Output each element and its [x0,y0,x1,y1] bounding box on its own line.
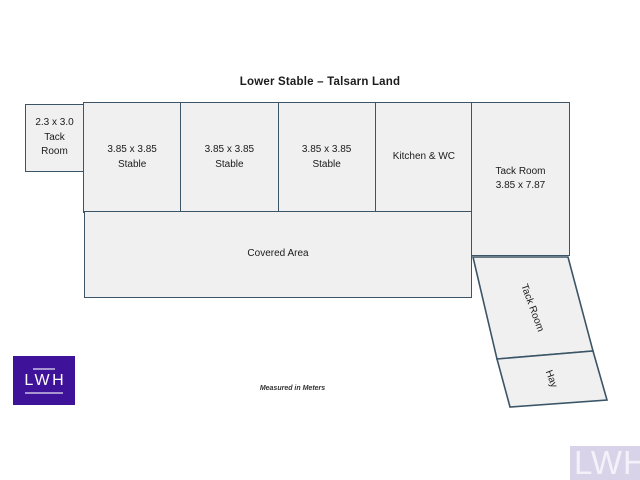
room-stable-2-label: 3.85 x 3.85 Stable [205,143,254,172]
room-name: Tack Room [495,165,545,180]
room-hay-label: Hay [543,369,559,389]
logo-text: LWH [22,373,66,389]
room-name: Tack [35,131,73,146]
room-kitchen-wc: Kitchen & WC [375,103,472,212]
lwh-logo: LWH [13,356,75,405]
watermark-text: LWH [570,446,640,480]
lwh-watermark: LWH [570,446,640,480]
stable-block: 3.85 x 3.85 Stable 3.85 x 3.85 Stable 3.… [83,102,473,213]
room-stable-1: 3.85 x 3.85 Stable [84,103,180,212]
room-dimension: 3.85 x 3.85 [205,143,254,158]
room-kitchen-wc-label: Kitchen & WC [393,150,455,165]
room-tack-right: Tack Room 3.85 x 7.87 [471,102,570,256]
room-small-tack-label: 2.3 x 3.0 Tack Room [35,116,73,160]
room-name: Room [35,145,73,160]
room-name: Covered Area [247,247,308,262]
room-dimension: 3.85 x 3.85 [302,143,351,158]
room-name: Stable [205,158,254,173]
plan-title: Lower Stable – Talsarn Land [0,76,640,88]
room-small-tack: 2.3 x 3.0 Tack Room [25,104,84,172]
room-stable-3-label: 3.85 x 3.85 Stable [302,143,351,172]
room-dimension: 3.85 x 3.85 [107,143,156,158]
floor-plan: Lower Stable – Talsarn Land 2.3 x 3.0 Ta… [0,0,640,480]
room-dimension: 2.3 x 3.0 [35,116,73,131]
room-tack-lower-label: Tack Room [518,283,545,334]
room-stable-3: 3.85 x 3.85 Stable [278,103,375,212]
room-stable-1-label: 3.85 x 3.85 Stable [107,143,156,172]
room-covered-area-label: Covered Area [247,247,308,262]
logo-tagline-line [25,392,63,394]
room-name: Stable [107,158,156,173]
room-tack-right-label: Tack Room 3.85 x 7.87 [495,165,545,194]
room-name: Kitchen & WC [393,150,455,165]
measurement-note: Measured in Meters [230,385,355,392]
logo-tagline-line [33,368,55,370]
room-name: Stable [302,158,351,173]
room-dimension: 3.85 x 7.87 [495,179,545,194]
room-stable-2: 3.85 x 3.85 Stable [180,103,277,212]
room-covered-area: Covered Area [84,211,472,298]
